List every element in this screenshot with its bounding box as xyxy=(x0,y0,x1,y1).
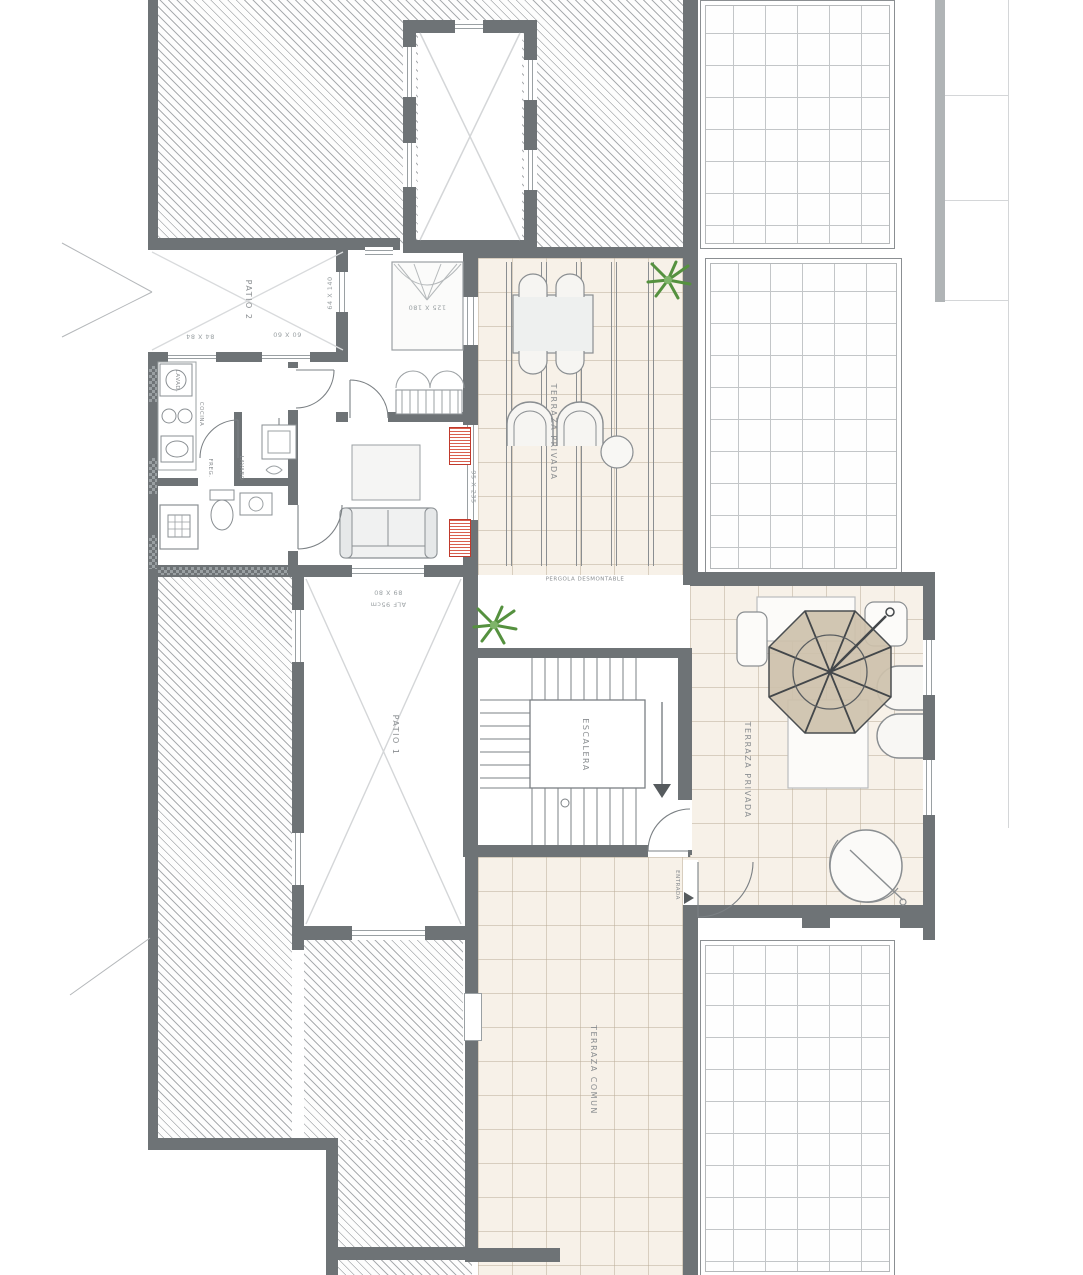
wall-stair-north xyxy=(463,648,690,658)
window-kitchen xyxy=(168,352,216,362)
floor-plan: PATIO 2 84 X 84 60 X 60 64 X 140 125 X 1… xyxy=(0,0,1083,1275)
window-patio2-bedroom xyxy=(336,272,348,312)
wall-common-south xyxy=(465,1248,560,1262)
terrace-private-right-tiles xyxy=(690,585,935,917)
door-gap-stair-s xyxy=(648,845,688,857)
roof-hatch-bottom xyxy=(338,1140,472,1247)
faint-line-2 xyxy=(945,200,1008,201)
window-bedroom-north xyxy=(365,247,393,258)
label-terraza-comun: TERRAZA COMUN xyxy=(589,1025,597,1115)
label-patio1: PATIO 1 xyxy=(391,715,399,756)
plant-2 xyxy=(474,607,516,643)
window-bedroom-east xyxy=(463,297,478,345)
door-gap-bath2b xyxy=(198,478,234,486)
dim-patio2-left: 84 X 84 xyxy=(186,333,215,340)
patio-top-floor xyxy=(418,31,522,242)
dim-patio1-2: ALF 95cm xyxy=(370,601,406,608)
wall-terrace-right-south xyxy=(690,905,935,918)
window-terrace-right-1 xyxy=(923,640,935,695)
window-patio-top-e1 xyxy=(524,60,537,100)
wall-common-east xyxy=(683,905,698,1275)
roof-hatch-below-patio1 xyxy=(304,938,463,1140)
hvac-unit-2 xyxy=(449,519,471,557)
wall-roof-vert xyxy=(326,1138,338,1275)
terrace-common-tiles xyxy=(478,857,692,1275)
party-wall-light xyxy=(935,0,945,302)
wall-insulation-2 xyxy=(149,458,157,494)
wall-terrace-right-north xyxy=(690,572,935,586)
roof-terrace-grid-2 xyxy=(705,258,902,574)
door-gap-bedroom xyxy=(348,412,388,422)
window-patio-top-w1 xyxy=(403,47,416,97)
wall-stub-2 xyxy=(900,918,923,928)
faint-line-3 xyxy=(945,300,1008,301)
window-patio1-w1 xyxy=(292,610,304,662)
wall-stub-1 xyxy=(802,918,830,928)
pergola-post-3 xyxy=(576,262,582,566)
roof-terrace-grid-1 xyxy=(700,0,895,249)
label-lavadora: LAVAD. xyxy=(173,370,179,393)
roof-hatch-left xyxy=(158,565,292,1140)
wall-patio-top-e xyxy=(524,20,537,253)
pergola-post-1 xyxy=(506,262,512,566)
window-patio1-w2 xyxy=(292,833,304,885)
label-terraza-privada-right: TERRAZA PRIVADA xyxy=(743,722,751,819)
label-escalera: ESCALERA xyxy=(581,718,589,771)
wall-roof-left xyxy=(148,560,158,1150)
label-cocina: COCINA xyxy=(197,402,203,427)
wall-topleft-edge xyxy=(148,0,158,250)
label-entrada: ENTRADA xyxy=(673,870,679,900)
roof-hatch-bottom-edge xyxy=(338,1260,472,1275)
window-patio1-north xyxy=(352,565,424,577)
wall-east-spine xyxy=(683,0,698,585)
wall-insulation-1 xyxy=(149,366,157,402)
door-gap-stair xyxy=(678,800,692,850)
boundary-leader-lines xyxy=(62,243,152,995)
wall-common-west xyxy=(465,857,478,1252)
dim-living-window: 95 X 235 xyxy=(470,470,477,503)
dim-bed: 125 X 180 xyxy=(408,304,446,311)
label-patio2: PATIO 2 xyxy=(244,280,252,321)
patio1-floor xyxy=(292,565,475,940)
wall-patio2-top xyxy=(150,238,400,250)
pergola-post-4 xyxy=(611,262,617,566)
stair-floor xyxy=(465,648,690,857)
faint-line-1 xyxy=(945,95,1008,96)
wall-terrace-top-edge xyxy=(478,247,683,258)
dim-patio1-1: 89 X 80 xyxy=(374,589,403,596)
pergola-post-2 xyxy=(541,262,547,566)
wall-insulation-4 xyxy=(158,567,288,575)
door-gap-common xyxy=(683,860,698,905)
label-pergola: PERGOLA DESMONTABLE xyxy=(546,577,625,583)
roof-terrace-grid-3 xyxy=(700,940,895,1275)
wall-insulation-3 xyxy=(149,535,157,569)
label-terraza-privada-top: TERRAZA PRIVADA xyxy=(549,384,557,481)
door-gap-hall xyxy=(288,368,298,410)
door-gap-bath2 xyxy=(288,505,298,551)
window-patio-top-n xyxy=(455,20,483,33)
boundary-line-right xyxy=(1008,0,1009,828)
label-fregadero: FREG. xyxy=(206,459,212,478)
hvac-unit-1 xyxy=(449,427,471,465)
window-patio-top-e2 xyxy=(524,150,537,190)
wall-roof-bottom xyxy=(148,1138,338,1150)
window-patio1-south xyxy=(352,926,425,940)
dim-patio2-right: 60 X 60 xyxy=(273,331,302,338)
dim-patio2-side: 64 X 140 xyxy=(327,276,334,309)
window-terrace-right-2 xyxy=(923,760,935,815)
wall-fixture xyxy=(464,993,482,1041)
window-patio-top-w2 xyxy=(403,143,416,187)
label-lavabo: LAVABO xyxy=(237,456,243,481)
wall-roof-bottom2 xyxy=(338,1247,472,1260)
pergola-post-5 xyxy=(648,262,654,566)
window-hall xyxy=(262,352,310,362)
wall-patio1-east xyxy=(463,575,478,857)
